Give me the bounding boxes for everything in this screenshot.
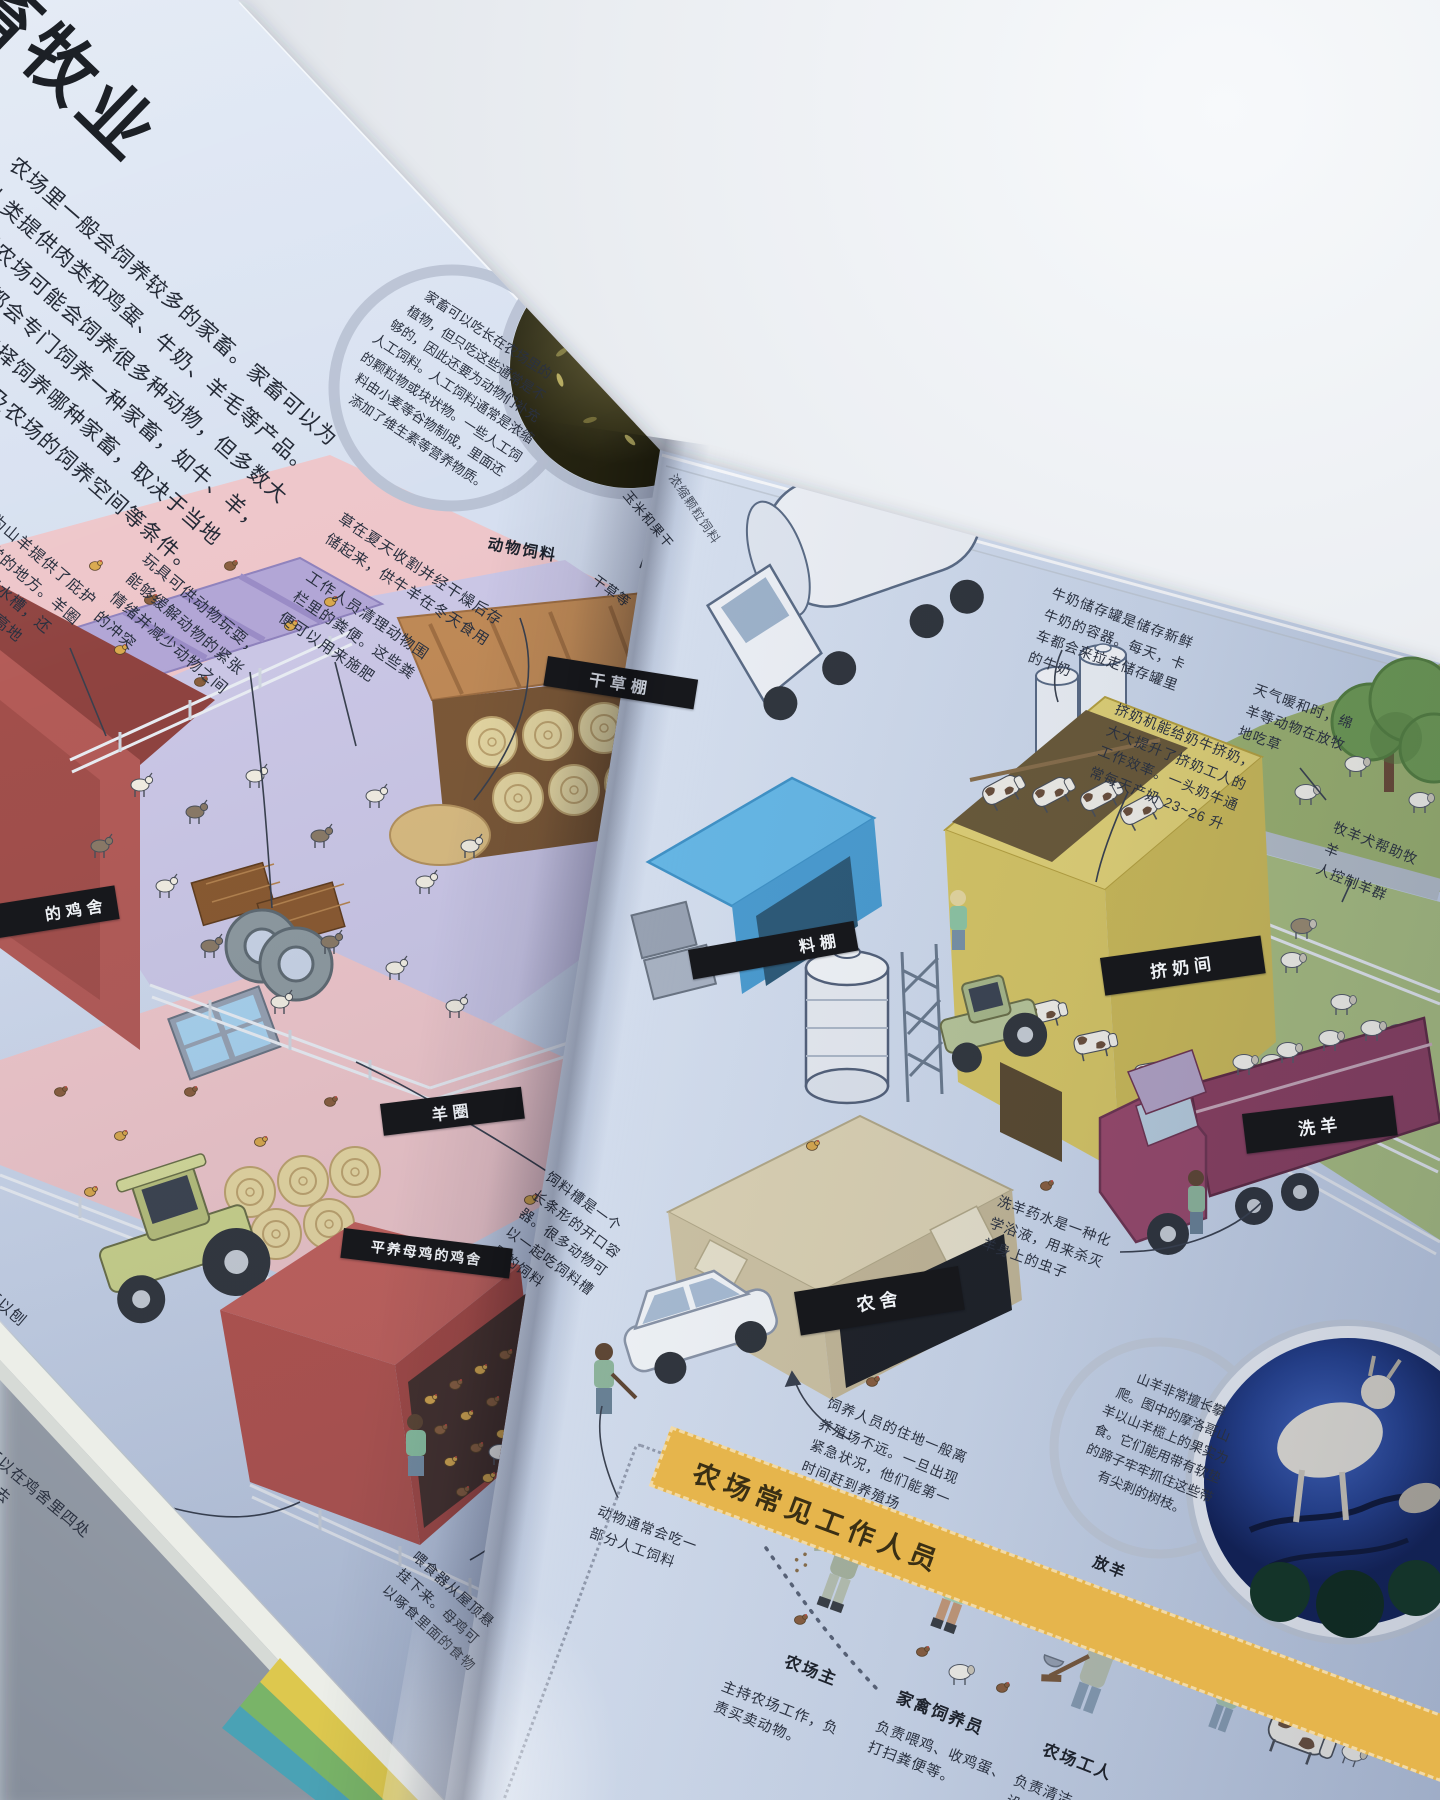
sheep-icon (549, 1491, 575, 1512)
hay-pile (390, 805, 490, 865)
tire-toy (260, 928, 332, 1000)
dip-worker (1188, 1170, 1205, 1234)
parlor-worker (950, 890, 967, 950)
water-silo (806, 946, 888, 1103)
stray-chicken (1041, 1180, 1054, 1190)
photo-of-open-book: 畜牧业 农场里一般会饲养较多的家畜。家畜可以为 人类提供肉类和鸡蛋、牛奶、羊毛等… (0, 0, 1440, 1800)
farmhouse (668, 1116, 1022, 1400)
lattice-tower (902, 944, 942, 1102)
